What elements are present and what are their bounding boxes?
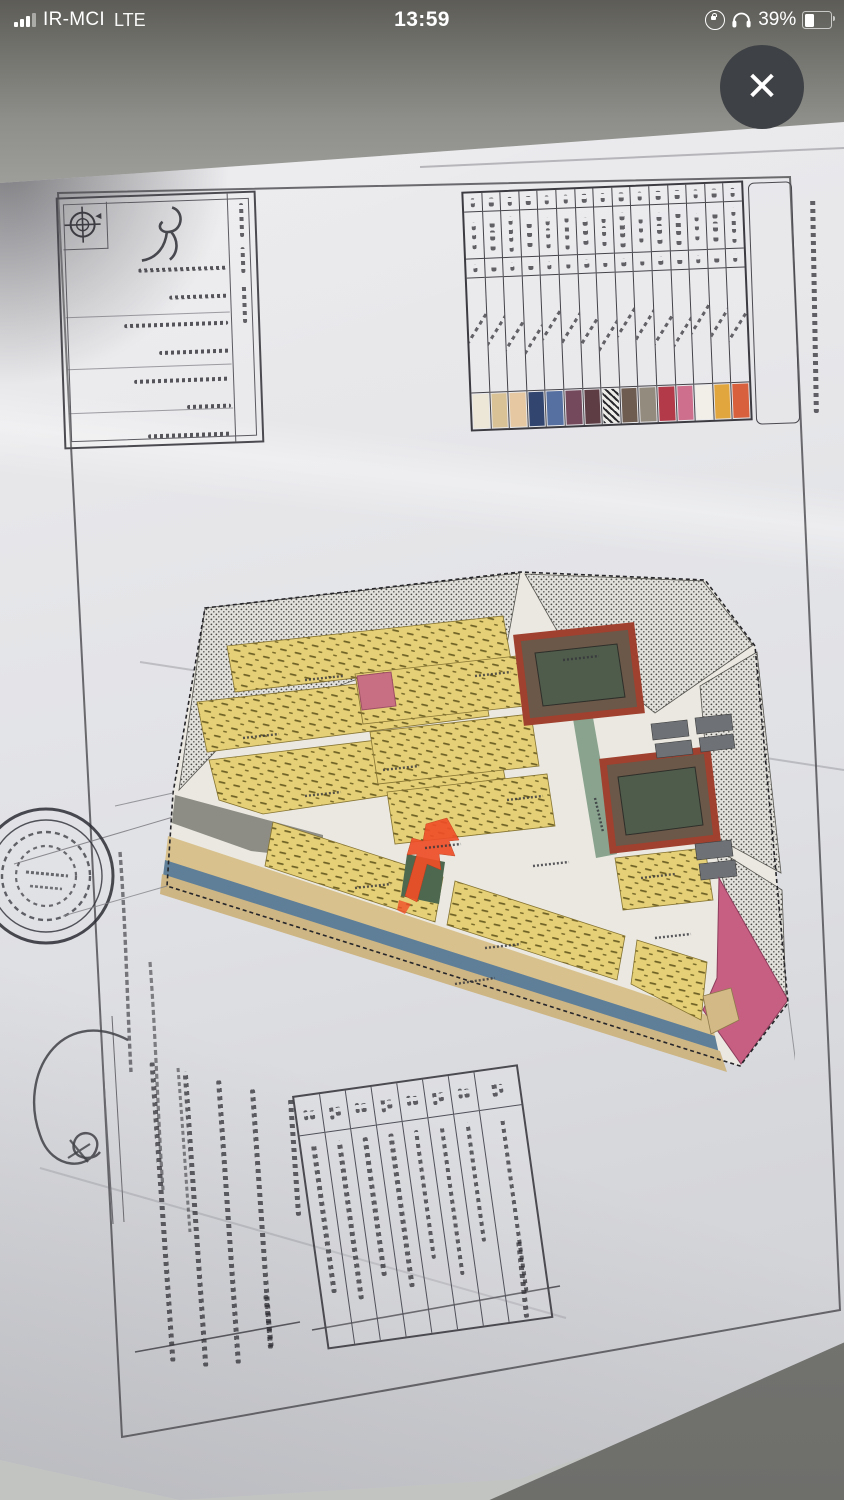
handwritten-note-line (150, 1062, 175, 1362)
close-button[interactable]: ✕ (720, 45, 804, 129)
school-block-1 (517, 626, 641, 722)
handwritten-note-line (216, 1080, 240, 1364)
illegible-text-line (240, 247, 245, 273)
landuse-legend-table (461, 180, 752, 431)
office-logo-mark (126, 201, 198, 267)
status-bar: IR-MCI LTE 13:59 39% (0, 0, 844, 46)
rotation-lock-icon (705, 10, 725, 30)
battery-icon (802, 11, 832, 29)
close-icon: ✕ (745, 67, 779, 107)
illegible-text-line (124, 321, 228, 329)
illegible-text-line (169, 293, 227, 299)
photographed-plan-paper[interactable] (0, 0, 844, 1500)
title-block-text-rows (112, 266, 232, 440)
handwritten-notes (150, 1062, 310, 1372)
empty-side-panel (748, 181, 800, 424)
site-plan-map[interactable] (55, 548, 795, 1088)
battery-percent-label: 39% (758, 9, 796, 31)
illegible-text-line (159, 349, 229, 355)
illegible-text-line (242, 283, 248, 323)
headphones-icon (731, 11, 752, 29)
pink-reserve-block (357, 672, 396, 710)
north-compass-icon (62, 202, 109, 251)
handwritten-note-line (183, 1071, 208, 1367)
handwritten-note-line (288, 1098, 301, 1216)
illegible-text-line (134, 376, 230, 383)
school-block-2 (603, 750, 717, 850)
area-summary-table (292, 1064, 553, 1349)
illegible-text-line (239, 203, 245, 237)
title-block (56, 191, 265, 450)
sheet-edge-title-text (810, 198, 819, 413)
illegible-text-line (810, 198, 819, 413)
